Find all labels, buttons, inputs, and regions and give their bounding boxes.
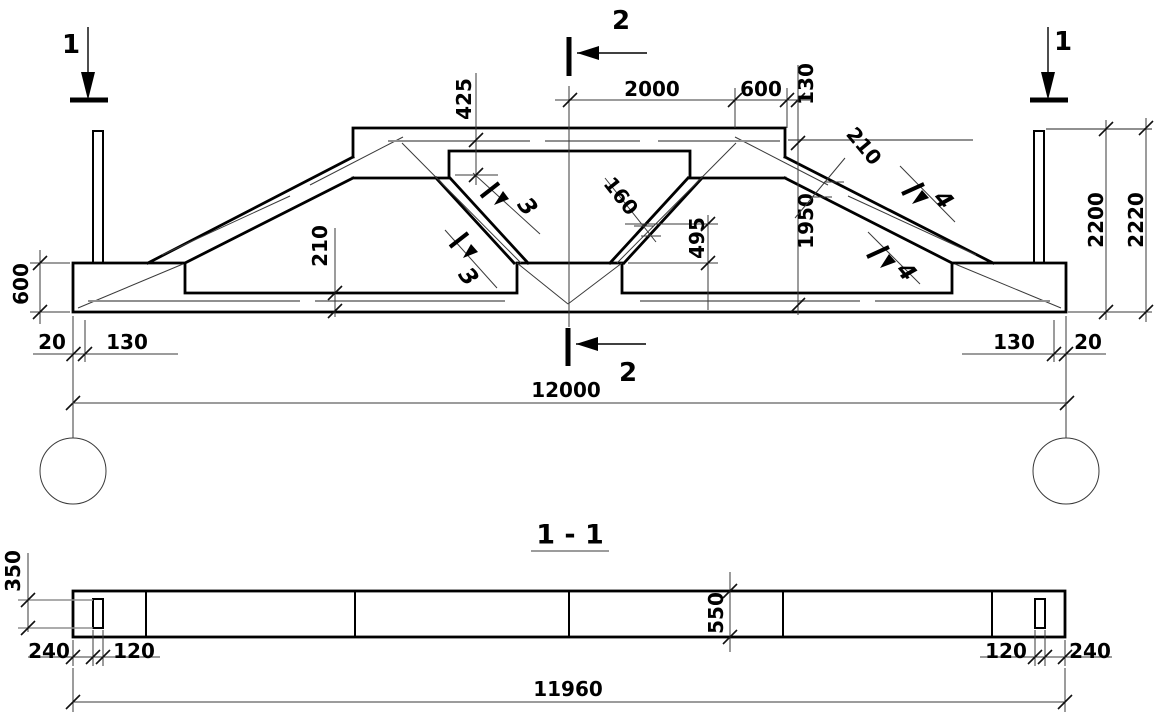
drawing-canvas: 1 1 2 2 3 — [0, 0, 1161, 718]
dim-2000: 2000 — [624, 77, 680, 101]
dim-550-label: 550 — [704, 592, 728, 634]
dim-210-chord-label: 210 — [308, 225, 332, 267]
section-4-label: 4 — [927, 185, 958, 215]
dim-sv-bottom-right: 120 240 — [980, 630, 1112, 666]
dim-2220-label: 2220 — [1124, 192, 1148, 248]
section-arrow-icon — [912, 190, 929, 204]
cut-stroke — [481, 183, 499, 197]
section-arrow-left-icon — [577, 46, 599, 60]
cut-stroke — [867, 247, 889, 257]
section-title-label: 1 - 1 — [536, 520, 604, 551]
section-marker-1-right: 1 — [1030, 27, 1072, 100]
dim-550: 550 — [704, 572, 737, 652]
dim-11960: 11960 — [66, 668, 1072, 712]
dim-425-label: 425 — [452, 78, 476, 120]
axis-bubble — [40, 438, 106, 504]
column-axis-right — [1033, 362, 1099, 504]
dim-20-label: 20 — [1074, 330, 1102, 354]
section-1-label: 1 — [1054, 27, 1072, 57]
dim-span-12000: 12000 — [66, 378, 1074, 410]
section-arrow-down-icon — [81, 72, 95, 100]
section-joints — [146, 591, 992, 637]
section-arrow-icon — [880, 254, 896, 268]
dim-210-slope-label: 210 — [841, 122, 886, 169]
dim-350-label: 350 — [1, 550, 25, 592]
dim-600-left: 600 — [9, 250, 70, 324]
anchor-plate-right — [1034, 131, 1044, 263]
dim-350: 350 — [1, 550, 93, 635]
section-arrow-icon — [463, 244, 478, 258]
dim-12000-label: 12000 — [531, 378, 601, 402]
dim-120-label: 120 — [985, 639, 1027, 663]
dim-right-heights: 2200 2220 — [1068, 118, 1153, 322]
dim-160-label: 160 — [599, 172, 644, 220]
dim-sv-bottom-left: 240 120 — [28, 630, 160, 666]
elevation-view: 1 1 2 2 3 — [9, 6, 1153, 504]
axis-bubble — [1033, 438, 1099, 504]
dim-20-label: 20 — [38, 330, 66, 354]
section-1-label: 1 — [62, 30, 80, 60]
dim-600: 600 — [740, 77, 782, 101]
section-view-1-1: 1 - 1 350 550 240 120 — [1, 520, 1112, 713]
section-symbol-4-upper: 4 — [900, 166, 958, 222]
dim-11960-label: 11960 — [533, 677, 603, 701]
section-marker-1-left: 1 — [62, 27, 108, 100]
dim-600-left-label: 600 — [9, 263, 33, 305]
dim-2200-label: 2200 — [1084, 192, 1108, 248]
dim-bottom-left: 20 130 — [33, 316, 178, 362]
anchor-plate-left — [93, 131, 103, 263]
dim-495: 495 — [625, 215, 718, 310]
section-arrow-left-icon — [576, 337, 598, 351]
section-title: 1 - 1 — [531, 520, 609, 552]
dim-bottom-right: 130 20 — [962, 316, 1106, 362]
dim-lines — [30, 250, 70, 324]
section-arrow-icon — [494, 191, 509, 205]
dim-240-label: 240 — [28, 639, 70, 663]
hole-left — [93, 599, 103, 628]
hole-right — [1035, 599, 1045, 628]
dim-495-label: 495 — [685, 217, 709, 259]
section-symbol-4-lower: 4 — [867, 232, 921, 286]
dim-1950-label: 1950 — [794, 193, 818, 249]
dim-240-label: 240 — [1069, 639, 1111, 663]
section-2-label: 2 — [619, 358, 637, 388]
column-axis-left — [40, 362, 106, 504]
section-3-label: 3 — [512, 193, 542, 222]
dim-210-chord: 210 — [308, 225, 342, 318]
truss-drawing: 1 1 2 2 3 — [0, 0, 1161, 718]
section-symbol-3-lower: 3 — [445, 230, 497, 291]
dim-top-chain: 2000 600 130 — [555, 63, 818, 128]
dim-130-label: 130 — [993, 330, 1035, 354]
dim-120-label: 120 — [113, 639, 155, 663]
section-arrow-down-icon — [1041, 72, 1055, 100]
section-2-label: 2 — [612, 6, 630, 36]
section-marker-2-top: 2 — [569, 6, 647, 76]
dim-130-label: 130 — [106, 330, 148, 354]
ext-lines — [18, 600, 93, 628]
